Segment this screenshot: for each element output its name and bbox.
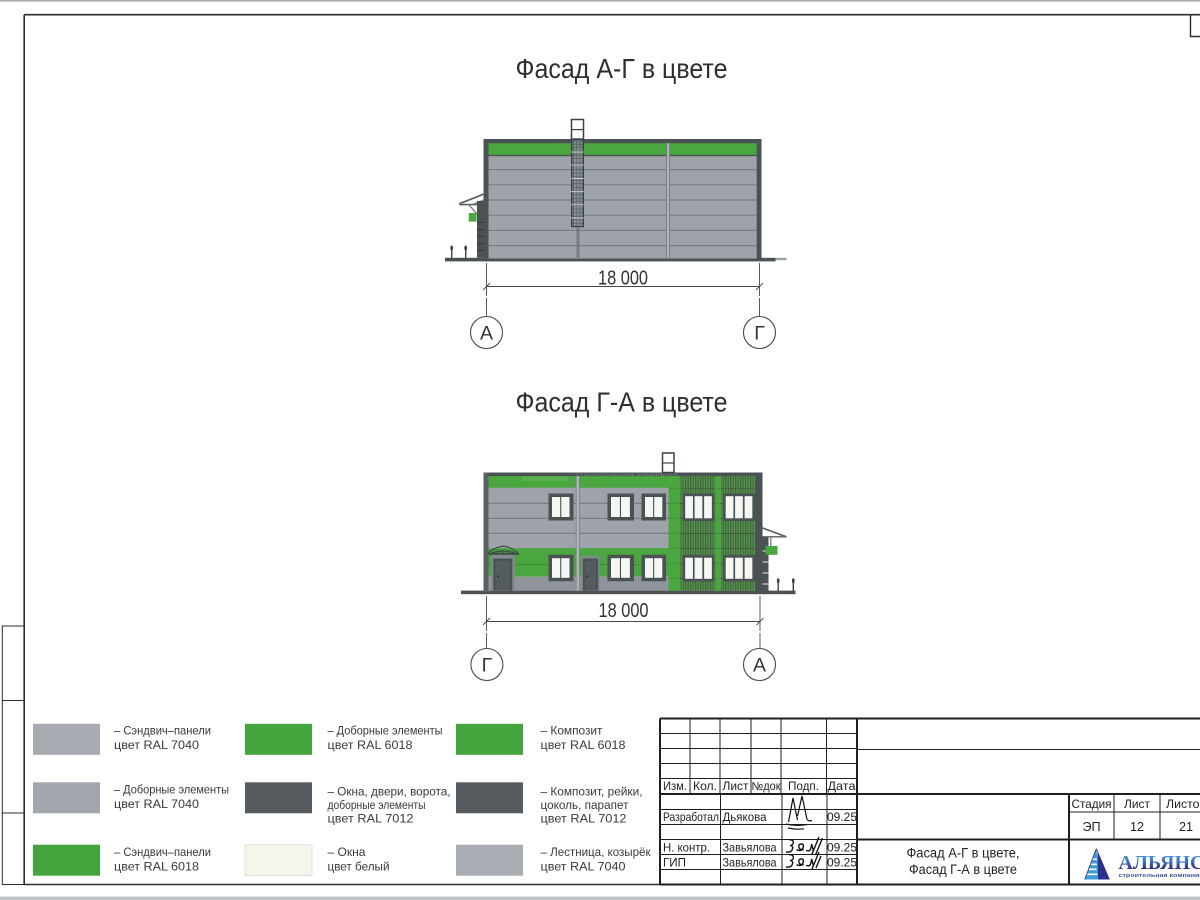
svg-text:Фасад А-Г в цвете: Фасад А-Г в цвете [516,53,728,84]
svg-text:АЛЬЯНС: АЛЬЯНС [1119,853,1200,874]
svg-text:ГИП: ГИП [663,857,686,870]
svg-text:– Композит, рейки,: – Композит, рейки, [541,784,643,798]
svg-text:– Окна, двери, ворота,: – Окна, двери, ворота, [328,784,451,798]
svg-text:18 000: 18 000 [599,599,649,622]
svg-text:Листов: Листов [1166,797,1200,811]
svg-text:09.25: 09.25 [827,841,857,855]
svg-text:доборные элементы: доборные элементы [328,798,426,812]
svg-text:№док: №док [752,780,782,793]
svg-text:09.25: 09.25 [827,810,857,824]
svg-text:ЭП: ЭП [1082,820,1100,834]
svg-text:Лист: Лист [1124,797,1150,811]
svg-text:18 000: 18 000 [598,266,648,289]
svg-text:– Доборные элементы: – Доборные элементы [328,724,443,738]
svg-text:А: А [753,655,766,677]
svg-text:Лист: Лист [723,780,750,793]
svg-text:цвет RAL 6018: цвет RAL 6018 [114,859,199,873]
svg-text:Завьялова: Завьялова [723,857,778,870]
svg-text:цвет белый: цвет белый [328,859,390,873]
svg-text:– Лестница, козырёк: – Лестница, козырёк [541,845,652,859]
svg-text:цвет RAL 7040: цвет RAL 7040 [541,859,626,873]
svg-text:Изм.: Изм. [663,780,687,793]
svg-text:– Сэндвич–панели: – Сэндвич–панели [114,845,211,859]
svg-text:– Окна: – Окна [328,845,366,859]
svg-text:Г: Г [754,323,765,345]
svg-text:Г: Г [482,655,493,677]
svg-text:строительная компания: строительная компания [1119,873,1200,879]
svg-text:цвет RAL 7040: цвет RAL 7040 [114,738,199,752]
svg-text:Завьялова: Завьялова [723,842,778,855]
svg-text:Кол.: Кол. [693,780,717,793]
svg-text:Стадия: Стадия [1072,797,1112,811]
svg-text:А: А [480,323,493,345]
svg-text:Фасад Г-А в цвете: Фасад Г-А в цвете [909,862,1017,877]
svg-text:09.25: 09.25 [827,856,857,870]
svg-text:Фасад Г-А в цвете: Фасад Г-А в цвете [516,386,728,417]
svg-text:Дьякова: Дьякова [723,811,768,824]
svg-text:цвет RAL 6018: цвет RAL 6018 [328,738,413,752]
svg-text:цвет RAL 7012: цвет RAL 7012 [541,811,627,825]
svg-text:Н. контр.: Н. контр. [663,842,710,855]
svg-text:цвет RAL 6018: цвет RAL 6018 [541,738,626,752]
svg-text:– Доборные элементы: – Доборные элементы [114,783,229,797]
svg-text:Фасад А-Г в цвете,: Фасад А-Г в цвете, [907,846,1020,861]
svg-text:Подп.: Подп. [788,780,819,793]
svg-text:Дата: Дата [828,780,857,793]
svg-text:– Композит: – Композит [541,724,603,738]
svg-text:12: 12 [1130,820,1144,834]
svg-text:21: 21 [1179,820,1193,834]
svg-text:Разработал: Разработал [663,811,719,824]
svg-text:цвет RAL 7012: цвет RAL 7012 [328,811,414,825]
svg-text:цоколь, парапет: цоколь, парапет [541,798,629,812]
svg-text:цвет RAL 7040: цвет RAL 7040 [114,797,199,811]
svg-text:– Сэндвич–панели: – Сэндвич–панели [114,724,211,738]
